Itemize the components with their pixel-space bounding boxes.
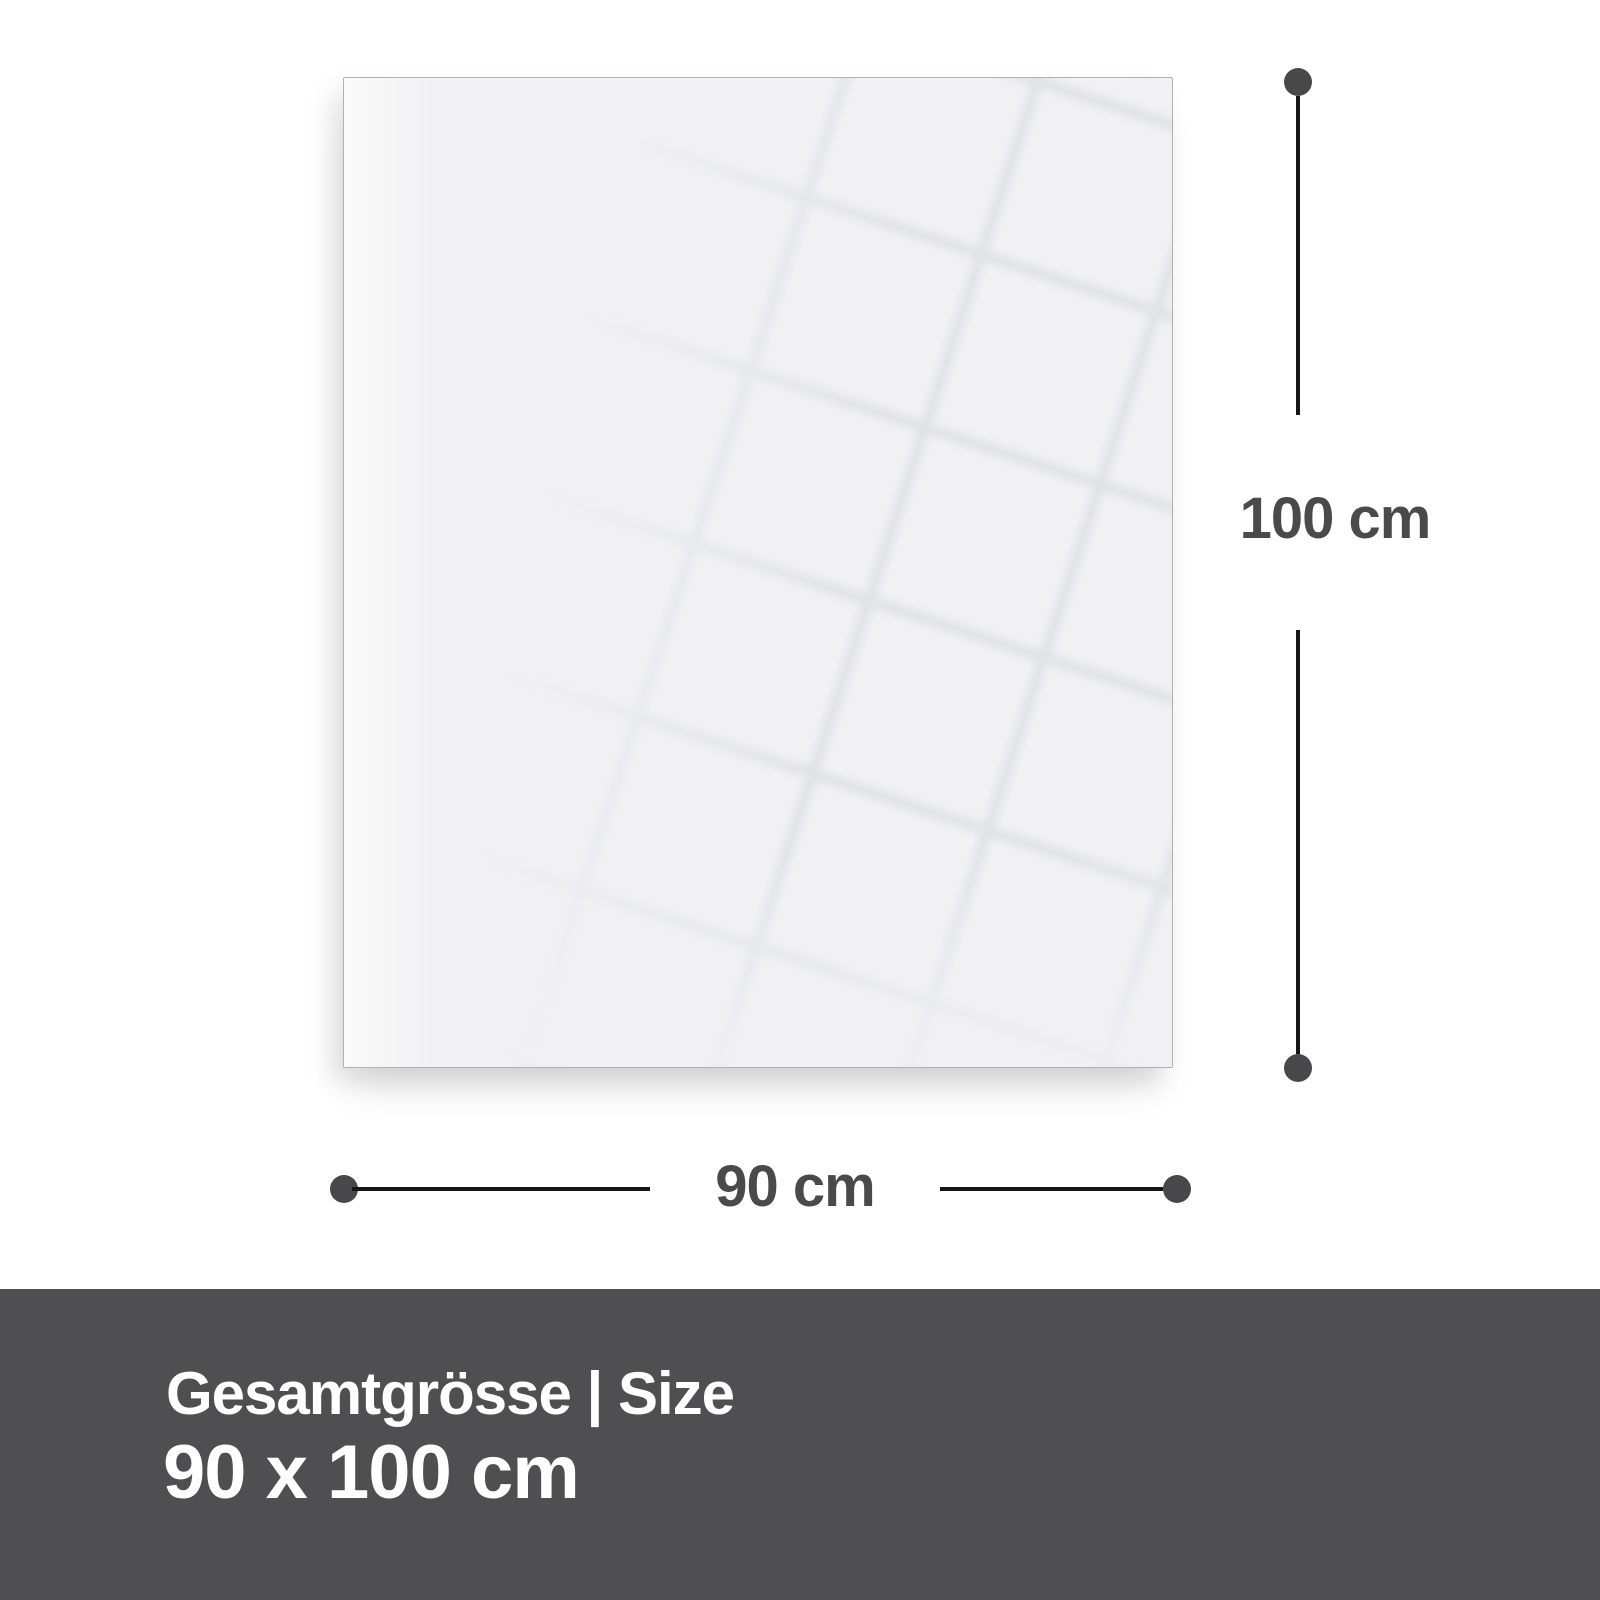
panel-sheen bbox=[344, 78, 1172, 1067]
width-dimension-line-right bbox=[940, 1187, 1163, 1191]
product-panel bbox=[343, 77, 1173, 1068]
footer-size-value: 90 x 100 cm bbox=[163, 1432, 579, 1514]
height-dimension-bottom-dot bbox=[1284, 1054, 1312, 1082]
product-size-infographic: 100 cm 90 cm Gesamtgrösse | Size 90 x 10… bbox=[0, 0, 1600, 1600]
size-footer: Gesamtgrösse | Size 90 x 100 cm bbox=[0, 1289, 1600, 1600]
footer-title: Gesamtgrösse | Size bbox=[166, 1362, 734, 1426]
height-dimension-top-dot bbox=[1284, 68, 1312, 96]
width-dimension-right-dot bbox=[1163, 1175, 1191, 1203]
height-dimension-label: 100 cm bbox=[1225, 489, 1445, 549]
height-dimension-line-upper bbox=[1296, 96, 1300, 415]
width-dimension-line-left bbox=[352, 1187, 650, 1191]
width-dimension-label: 90 cm bbox=[650, 1157, 940, 1217]
height-dimension-line-lower bbox=[1296, 630, 1300, 1054]
